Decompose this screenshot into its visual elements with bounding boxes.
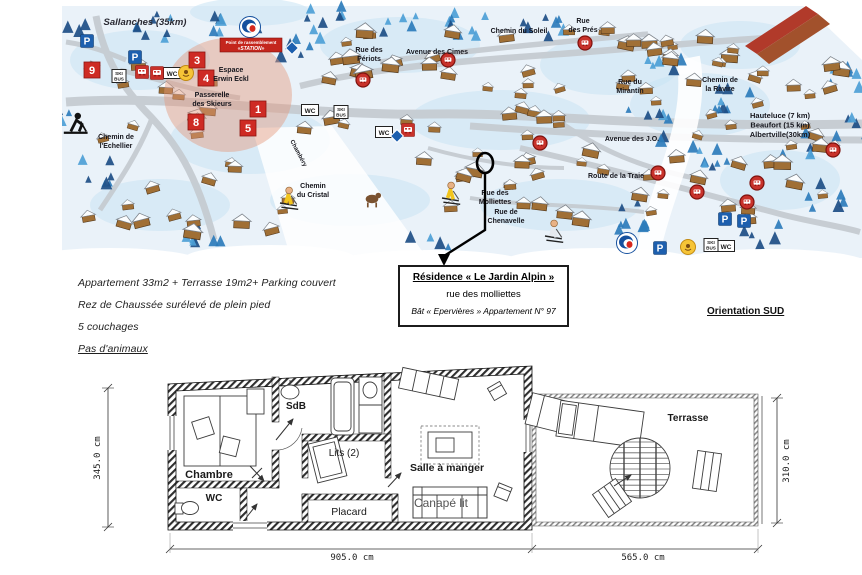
dimension-label: 310.0 cm <box>782 439 792 482</box>
p-icon: P <box>738 215 751 228</box>
busc-icon <box>578 36 592 50</box>
svg-text:Chemin du Soleil: Chemin du Soleil <box>491 28 548 35</box>
map-street-label: Chemin du Soleil <box>491 28 548 35</box>
resort-map: PPPPPWCWCWCWCSKIBUSSKIBUSSKIBUS934158Poi… <box>0 0 862 268</box>
svg-text:Périots: Périots <box>357 56 381 63</box>
skibus-icon: SKIBUS <box>334 106 348 119</box>
busc-icon <box>651 166 665 180</box>
dimension-label: 345.0 cm <box>93 436 103 479</box>
svg-text:P: P <box>657 244 664 255</box>
svg-text:Rue du: Rue du <box>618 79 642 86</box>
svg-text:la Ravire: la Ravire <box>705 86 734 93</box>
svg-text:Avenue des Cimes: Avenue des Cimes <box>406 49 468 56</box>
residence-street: rue des molliettes <box>400 289 567 300</box>
svg-text:P: P <box>722 215 729 226</box>
bus-icon <box>151 67 164 80</box>
skibus-icon: SKIBUS <box>704 239 718 252</box>
svg-text:WC: WC <box>167 71 178 78</box>
svg-text:Mirantin: Mirantin <box>616 88 643 95</box>
orientation-label: Orientation SUD <box>707 306 784 317</box>
apartment-notes: Appartement 33m2 + Terrasse 19m2+ Parkin… <box>78 277 336 365</box>
map-marker-9: 9 <box>84 62 100 78</box>
sun-icon <box>681 240 696 255</box>
svg-text:Sallanches (35km): Sallanches (35km) <box>104 17 187 28</box>
svg-text:Albertville(30km): Albertville(30km) <box>750 130 811 139</box>
p-icon: P <box>654 242 667 255</box>
svg-text:Chemin de: Chemin de <box>98 134 134 141</box>
room-label: Terrasse <box>668 413 709 424</box>
p-icon: P <box>719 213 732 226</box>
svg-text:l'Echellier: l'Echellier <box>100 143 133 150</box>
map-street-label: Hauteluce (7 km)Beaufort (15 km)Albertvi… <box>750 111 811 139</box>
room-label: Lits (2) <box>329 448 360 459</box>
note-line: Rez de Chaussée surélevé de plein pied <box>78 299 336 311</box>
svg-text:Point de rassemblement: Point de rassemblement <box>226 40 277 45</box>
skibus-icon: SKIBUS <box>112 70 126 83</box>
svg-text:Chenavelle: Chenavelle <box>488 218 525 225</box>
svg-text:P: P <box>84 37 91 48</box>
room-label: Placard <box>331 506 367 518</box>
svg-text:5: 5 <box>245 123 251 135</box>
room-label: Canapé lit <box>414 496 469 510</box>
busc-icon <box>740 195 754 209</box>
svg-text:SKI: SKI <box>707 240 715 245</box>
dimension-label: 565.0 cm <box>621 553 664 563</box>
p-icon: P <box>129 51 142 64</box>
busc-icon <box>826 143 840 157</box>
note-line: Pas d'animaux <box>78 343 336 355</box>
wc-icon: WC <box>164 68 181 79</box>
svg-text:Chemin: Chemin <box>300 183 326 190</box>
map-marker-5: 5 <box>240 120 256 136</box>
svg-text:du Cristal: du Cristal <box>297 192 329 199</box>
svg-text:8: 8 <box>193 117 199 129</box>
busc-icon <box>356 73 370 87</box>
residence-title: Résidence « Le Jardin Alpin » <box>400 272 567 283</box>
map-marker-3: 3 <box>189 52 205 68</box>
map-street-label: Sallanches (35km) <box>104 17 187 28</box>
svg-text:WC: WC <box>305 108 316 115</box>
busc-icon <box>690 185 704 199</box>
svg-text:Espace: Espace <box>219 67 244 74</box>
svg-text:Rue: Rue <box>576 18 589 25</box>
svg-text:Rue de: Rue de <box>494 209 517 216</box>
map-street-label: Avenue des Cimes <box>406 49 468 56</box>
floor-plan: ChambreWCSdBLits (2)PlacardSalle à mange… <box>0 355 862 575</box>
map-street-label: Route de la Traie <box>588 173 644 180</box>
room-label: SdB <box>286 401 306 412</box>
svg-text:Hauteluce (7 km): Hauteluce (7 km) <box>750 111 811 120</box>
svg-text:Passerelle: Passerelle <box>195 92 230 99</box>
svg-text:P: P <box>741 217 748 228</box>
svg-text:SKI: SKI <box>115 71 123 76</box>
logo-icon <box>240 17 261 38</box>
room-label: WC <box>206 493 223 504</box>
svg-text:Rue des: Rue des <box>355 47 382 54</box>
note-line: 5 couchages <box>78 321 336 333</box>
svg-text:«STATION»: «STATION» <box>238 46 265 52</box>
svg-text:Erwin Eckl: Erwin Eckl <box>213 76 248 83</box>
svg-text:P: P <box>132 53 139 64</box>
svg-text:BUS: BUS <box>336 113 346 118</box>
wc-icon: WC <box>376 127 393 138</box>
svg-text:WC: WC <box>379 130 390 137</box>
svg-text:Molliettes: Molliettes <box>479 199 511 206</box>
svg-text:Beaufort (15 km): Beaufort (15 km) <box>750 121 810 130</box>
wc-icon: WC <box>302 105 319 116</box>
svg-text:Chemin de: Chemin de <box>702 77 738 84</box>
map-marker-8: 8 <box>188 114 204 130</box>
map-street-label: Avenue des J.O. <box>605 136 659 143</box>
busc-icon <box>533 136 547 150</box>
svg-text:3: 3 <box>194 55 200 67</box>
svg-text:1: 1 <box>255 104 261 116</box>
room-label: Salle à manger <box>410 462 484 474</box>
svg-text:Route de la Traie: Route de la Traie <box>588 173 644 180</box>
svg-text:des Skieurs: des Skieurs <box>192 101 231 108</box>
svg-text:BUS: BUS <box>114 77 124 82</box>
bus-icon <box>402 124 415 137</box>
residence-building: Bât « Epervières » Appartement N° 97 <box>400 306 567 316</box>
address-box: Résidence « Le Jardin Alpin » rue des mo… <box>398 265 569 327</box>
svg-text:4: 4 <box>203 73 210 85</box>
room-label: Chambre <box>185 469 233 481</box>
logo-icon <box>617 233 638 254</box>
svg-text:WC: WC <box>721 244 732 251</box>
svg-text:Avenue des J.O.: Avenue des J.O. <box>605 136 659 143</box>
map-marker-1: 1 <box>250 101 266 117</box>
note-line: Appartement 33m2 + Terrasse 19m2+ Parkin… <box>78 277 336 289</box>
svg-text:9: 9 <box>89 65 95 77</box>
dimension-label: 905.0 cm <box>330 553 373 563</box>
svg-text:SKI: SKI <box>337 107 345 112</box>
assembly-point-banner: Point de rassemblement«STATION» <box>220 38 282 52</box>
busc-icon <box>750 176 764 190</box>
bus-icon <box>136 66 149 79</box>
wc-icon: WC <box>718 241 735 252</box>
svg-text:des Prés: des Prés <box>568 27 597 34</box>
p-icon: P <box>81 35 94 48</box>
map-marker-4: 4 <box>198 70 214 86</box>
svg-text:BUS: BUS <box>706 246 716 251</box>
